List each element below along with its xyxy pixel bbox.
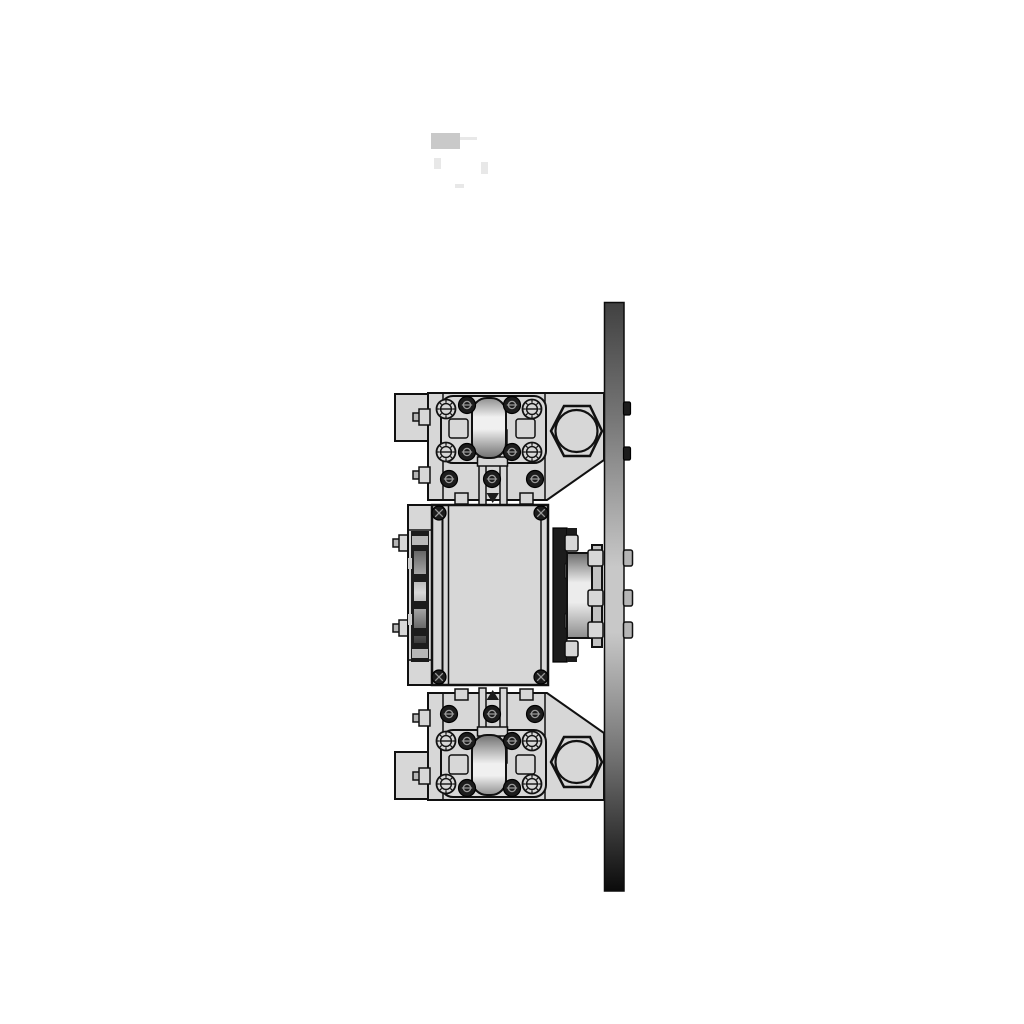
plate-bolt-tip (624, 590, 633, 606)
hub-bolt (588, 550, 603, 566)
corner-screw (432, 670, 446, 684)
gear-housing (393, 505, 548, 685)
bottom-roller-bracket (395, 688, 604, 800)
drawing-canvas (0, 0, 1024, 1024)
plate-bolt-tip (624, 622, 633, 638)
corner-screw (534, 670, 548, 684)
cad-drawing (0, 0, 1024, 1024)
hub-bolt (588, 622, 603, 638)
corner-screw (534, 506, 548, 520)
top-roller-bracket (395, 393, 604, 505)
hub-bolt (588, 590, 603, 606)
plate-bolt-tip (624, 550, 633, 566)
corner-screw (432, 506, 446, 520)
ghost-artifact (431, 133, 488, 188)
mounting-plate (605, 303, 625, 892)
flange-bolt (565, 641, 578, 657)
flange-bolt (565, 535, 578, 551)
left-bearing-stack (408, 531, 429, 662)
housing-block (432, 505, 548, 685)
